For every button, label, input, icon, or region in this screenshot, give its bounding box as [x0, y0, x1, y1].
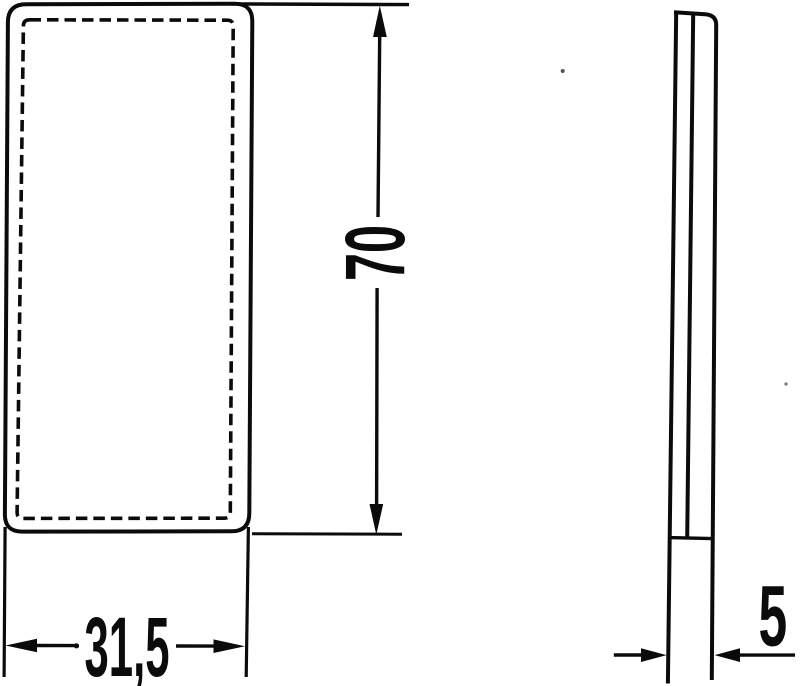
- svg-text:5: 5: [759, 569, 788, 665]
- svg-text:70: 70: [328, 225, 423, 281]
- svg-text:31,5: 31,5: [85, 601, 170, 686]
